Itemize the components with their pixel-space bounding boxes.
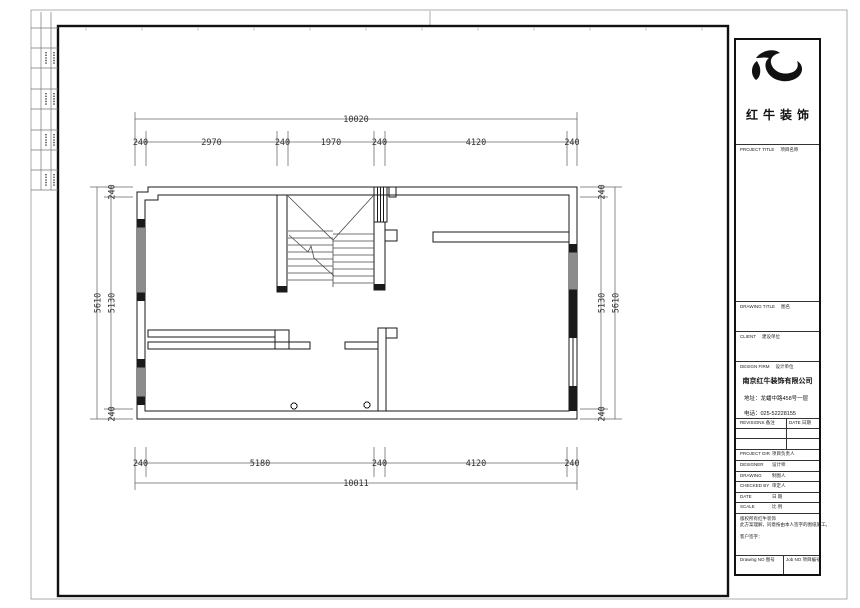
section-label-en: DRAWING TITLE — [740, 304, 775, 309]
dim-label: 240 — [108, 184, 118, 199]
row-project-dir: PROJECT DIR 项目负责人 — [736, 449, 819, 456]
row-label-zh: 设计师 — [772, 462, 786, 467]
stair-winder-lines — [288, 196, 373, 240]
cad-canvas: 240 2970 240 1970 240 4120 240 10020 240… — [0, 0, 860, 608]
row-designer: DESIGNER 设计师 — [736, 460, 819, 467]
dim-label: 5130 — [108, 293, 118, 313]
row-label-en: DATE — [736, 494, 772, 499]
table-row-line — [736, 438, 819, 439]
section-client: CLIENT 建设单位 — [736, 332, 819, 339]
table-row-line — [736, 428, 819, 429]
drawing-sheet: 240 2970 240 1970 240 4120 240 10020 240… — [0, 0, 860, 608]
drain-symbol-1 — [291, 403, 297, 409]
revisions-header: REVISIONS 备注 — [740, 420, 775, 425]
stair-treads-left — [288, 231, 333, 280]
wall-stair-left — [277, 195, 287, 292]
outer-wall — [137, 187, 577, 419]
row-label-en: PROJECT DIR — [736, 451, 772, 456]
binding-strip — [31, 12, 58, 190]
section-label-zh: 图名 — [781, 304, 790, 309]
drawing-no-label: Drawing NO 图号 — [740, 557, 775, 562]
row-label-en: SCALE — [736, 504, 772, 509]
row-scale: SCALE 比 例 — [736, 502, 819, 509]
dim-label: 240 — [133, 138, 148, 148]
footer-divider — [783, 555, 784, 574]
stair-rail-lines — [378, 187, 384, 222]
row-label-zh: 比 例 — [772, 504, 782, 509]
brand-name: 红牛装饰 — [736, 106, 819, 123]
section-label-zh: 建设单位 — [762, 334, 780, 339]
section-project-title: PROJECT TITLE 项目名称 — [736, 145, 819, 152]
divider — [736, 418, 819, 419]
wall-stair-right — [374, 222, 385, 290]
section-label-en: DESIGN FIRM — [740, 364, 770, 369]
wall-middle-upper — [148, 330, 275, 337]
divider — [736, 513, 819, 514]
dim-label: 5180 — [250, 459, 270, 469]
sheet-border — [31, 10, 847, 599]
binding-strip-text-marks — [46, 52, 54, 186]
stair-treads-right — [333, 234, 374, 283]
floor-plan-walls — [137, 187, 577, 419]
row-checked-by: CHECKED BY 审定人 — [736, 481, 819, 488]
dim-label: 240 — [598, 184, 608, 199]
dim-label: 240 — [598, 406, 608, 421]
wall-middle-pier — [275, 330, 289, 349]
section-label-en: CLIENT — [740, 334, 756, 339]
row-drawing: DRAWING 制图人 — [736, 471, 819, 478]
row-label-en: CHECKED BY — [736, 483, 772, 488]
dim-label: 240 — [564, 138, 579, 148]
window-left-lower — [137, 367, 145, 397]
wall-lower-stub — [386, 328, 397, 338]
row-date: DATE 日 期 — [736, 492, 819, 499]
wall-upper-right-room — [433, 232, 569, 242]
customer-signature-label: 客户签字： — [736, 534, 819, 540]
wall-lower-vertical — [378, 328, 386, 411]
bull-logo-icon — [746, 48, 810, 104]
job-no-label: Job NO 项目编号 — [786, 557, 821, 562]
company-phone: 电话：025-52228155 — [736, 409, 819, 417]
row-label-zh: 制图人 — [772, 473, 786, 478]
wall-stub-right — [385, 230, 397, 241]
drain-symbol-2 — [364, 402, 370, 408]
row-label-zh: 日 期 — [772, 494, 782, 499]
dim-label-overall-bottom: 10011 — [343, 479, 369, 489]
dim-label-overall-left: 5610 — [94, 293, 104, 313]
section-label-en: PROJECT TITLE — [740, 147, 774, 152]
disclaimer-line2: 此方案理解，同意按由本人签字的图纸施工。 — [736, 522, 819, 528]
dim-label: 240 — [108, 406, 118, 421]
dim-label: 2970 — [201, 138, 221, 148]
title-block: 红牛装饰 PROJECT TITLE 项目名称 DRAWING TITLE 图名… — [734, 38, 821, 576]
company-address: 地址：龙蟠中路458号一层 — [736, 394, 819, 402]
drawing-frame — [58, 26, 728, 596]
dim-label: 240 — [372, 138, 387, 148]
window-left-upper — [137, 227, 145, 293]
dim-label: 240 — [275, 138, 290, 148]
dim-label-overall-right: 5610 — [612, 293, 622, 313]
window-right — [569, 252, 577, 290]
wall-middle-lower-left — [148, 342, 310, 349]
table-divider — [786, 418, 787, 449]
frame-ticks — [86, 27, 702, 31]
section-design-firm: DESIGN FIRM 设计单位 — [736, 362, 819, 369]
dim-label-overall-top: 10020 — [343, 115, 369, 125]
row-label-zh: 项目负责人 — [772, 451, 795, 456]
inner-wall — [145, 195, 569, 411]
row-label-zh: 审定人 — [772, 483, 786, 488]
dim-label: 4120 — [466, 459, 486, 469]
dimension-labels: 240 2970 240 1970 240 4120 240 10020 240… — [94, 115, 622, 489]
row-label-en: DRAWING — [736, 473, 772, 478]
dim-label: 240 — [133, 459, 148, 469]
section-label-zh: 设计单位 — [776, 364, 794, 369]
section-drawing-title: DRAWING TITLE 图名 — [736, 302, 819, 309]
dim-label: 5130 — [598, 293, 608, 313]
dim-label: 240 — [372, 459, 387, 469]
staircase — [288, 196, 374, 287]
date-header: DATE 日期 — [789, 420, 811, 425]
stair-break-line — [289, 235, 334, 276]
dimension-lines — [90, 112, 622, 490]
row-label-en: DESIGNER — [736, 462, 772, 467]
dim-label: 1970 — [321, 138, 341, 148]
dim-label: 4120 — [466, 138, 486, 148]
company-name: 南京红牛装饰有限公司 — [736, 376, 819, 386]
divider — [736, 555, 819, 556]
section-label-zh: 项目名称 — [780, 147, 798, 152]
dim-label: 240 — [564, 459, 579, 469]
wall-middle-lower-right — [345, 342, 378, 349]
